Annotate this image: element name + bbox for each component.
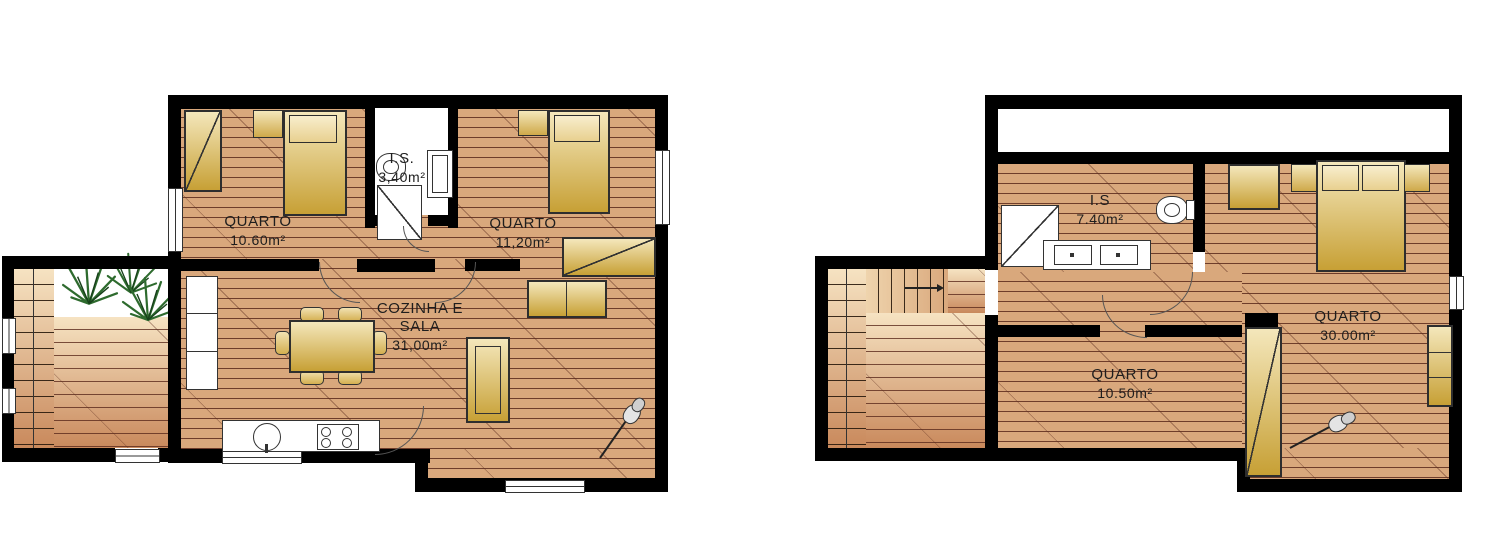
wall [1237,479,1462,492]
void-area [998,109,1449,152]
pillow [1362,165,1399,191]
tall-wardrobe [1245,327,1282,477]
room-label-quarto-1050: QUARTO 10.50m² [1055,366,1195,402]
room-name: I.S [1030,192,1170,210]
floor-plan-canvas: QUARTO 10.60m² I.S. 3,40m² QUARTO 11,20m… [0,0,1507,557]
wall [1245,313,1278,327]
wall [1145,325,1242,337]
room-name: QUARTO [1055,366,1195,384]
toilet-tank [1186,200,1195,220]
room-label-is: I.S 7.40m² [1030,192,1170,228]
nightstand [1404,164,1430,192]
wall [815,256,828,448]
deck-floor [866,313,985,448]
stair-arrow-icon [937,284,944,292]
drain [1116,253,1120,257]
sofa [1427,325,1453,407]
wall [985,95,1462,109]
wardrobe [1228,164,1280,210]
wall [985,95,998,270]
stair-rail [846,269,847,448]
stair-direction-line [905,287,937,289]
wardrobe-door-mark [1247,329,1280,475]
nightstand [1291,164,1317,192]
sofa-cushion-line [1429,377,1451,378]
upper-floor-plan: I.S 7.40m² QUARTO 30.00m² QUARTO 10.50m² [0,0,1507,557]
room-area: 7.40m² [1030,210,1170,228]
room-area: 10.50m² [1055,384,1195,402]
vanity-double-sink [1043,240,1151,270]
sofa-cushion-line [1429,352,1451,353]
wall [815,448,1242,461]
basin [1100,245,1138,265]
wall [998,325,1100,337]
drain [1070,253,1074,257]
deck-floor [948,269,985,313]
wall [985,315,998,448]
room-label-quarto-30: QUARTO 30.00m² [1278,308,1418,344]
basin [1054,245,1092,265]
double-bed [1316,160,1406,272]
wall [815,256,985,269]
room-name: QUARTO [1278,308,1418,326]
window [1449,276,1464,310]
pillow [1322,165,1359,191]
room-area: 30.00m² [1278,326,1418,344]
staircase-upper-flight [866,269,948,314]
staircase [828,269,867,448]
